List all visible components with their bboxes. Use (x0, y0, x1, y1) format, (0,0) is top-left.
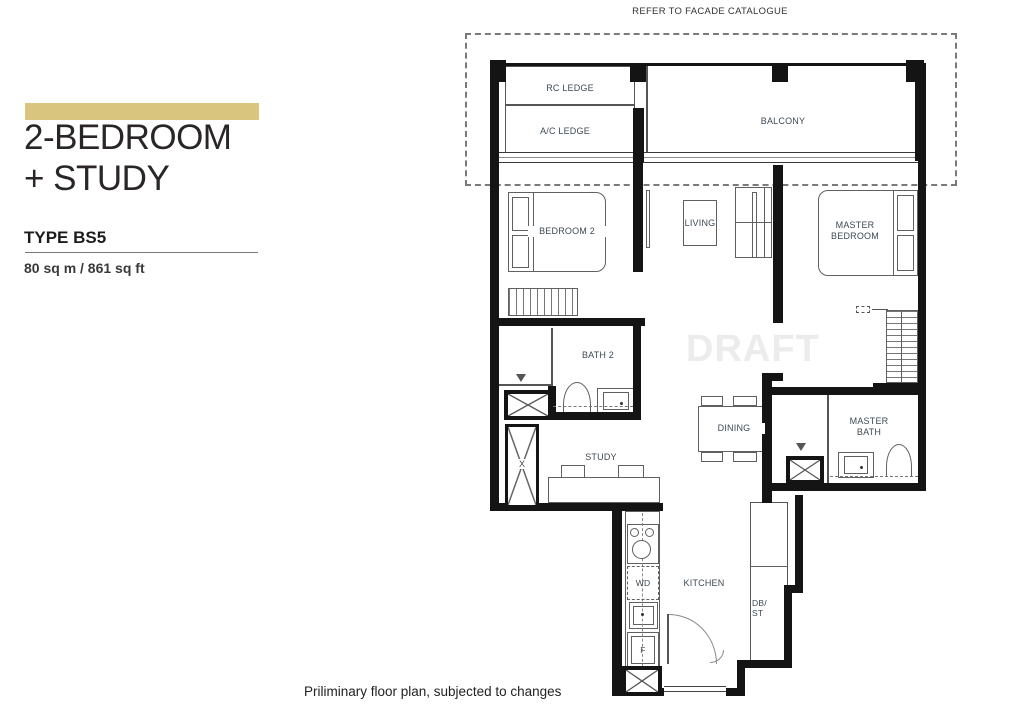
entrance-threshold (664, 686, 726, 692)
dining-chair (733, 452, 757, 462)
pillow (512, 235, 529, 268)
sink-basin (844, 456, 868, 474)
washer-dryer-label: WD (628, 578, 658, 589)
ac-ledge-xbox (504, 390, 552, 420)
dining-chair (701, 452, 723, 462)
sofa-backrest-line (764, 187, 765, 258)
wall-segment (498, 63, 918, 66)
db-st-closet (750, 502, 788, 664)
pillow (897, 235, 914, 271)
facade-note: REFER TO FACADE CATALOGUE (560, 6, 860, 17)
pillow (897, 195, 914, 231)
room-label-study: STUDY (569, 452, 633, 463)
sink-drain (620, 402, 623, 405)
room-label-master-bath: MASTER BATH (838, 416, 900, 438)
sliding-door-panel (752, 192, 757, 258)
room-label-rc-ledge: RC LEDGE (520, 83, 620, 94)
column-block (633, 108, 644, 162)
room-label-living: LIVING (681, 218, 719, 229)
wall-segment (784, 585, 792, 668)
fridge: F (627, 632, 659, 668)
draft-watermark: DRAFT (686, 328, 820, 371)
masterbath-screen-dashed (830, 476, 918, 477)
page-title-line2: + STUDY (24, 159, 169, 199)
shower-divider (551, 328, 553, 386)
panel-divider (25, 252, 258, 253)
masterbath-divider (827, 395, 829, 483)
study-chair (561, 465, 585, 478)
room-label-balcony: BALCONY (733, 116, 833, 127)
fridge-label: F (628, 645, 658, 656)
shower-head-icon (796, 443, 806, 451)
shower-divider (498, 384, 552, 386)
masterbath-shower-xbox (786, 456, 824, 484)
wall-segment (548, 412, 641, 420)
unit-area-label: 80 sq m / 861 sq ft (24, 260, 145, 276)
unit-type-label: TYPE BS5 (24, 228, 106, 248)
ledge-divider (505, 104, 635, 106)
entrance-door-arc-small (710, 650, 724, 663)
page-title-line1: 2-BEDROOM (24, 118, 231, 158)
sliding-door-panel (646, 190, 650, 248)
shower-screen-dashed (553, 406, 633, 407)
sink-drain (641, 613, 644, 616)
dining-chair (733, 396, 757, 406)
column-block (490, 60, 506, 82)
wall-segment (918, 158, 926, 491)
wardrobe-master (886, 310, 918, 383)
study-chair (618, 465, 644, 478)
door-slide-symbol (856, 306, 870, 313)
door-slide-line (872, 309, 888, 310)
wall-segment (873, 383, 926, 391)
wall-segment (773, 165, 783, 323)
window-band (498, 152, 918, 163)
disclaimer-text: Priliminary floor plan, subjected to cha… (304, 684, 561, 699)
dining-chair (701, 396, 723, 406)
db-st-label: DB/ ST (752, 598, 769, 620)
wall-segment (490, 63, 499, 511)
sofa-seat-divider (735, 222, 772, 223)
room-label-bedroom2: BEDROOM 2 (528, 226, 606, 237)
stove-burner (645, 528, 654, 537)
room-label-kitchen: KITCHEN (668, 578, 740, 589)
stove-burner-large (632, 540, 651, 559)
entrance-door-leaf (667, 614, 669, 664)
shower-head-icon (516, 374, 526, 382)
room-label-master-bedroom: MASTER BEDROOM (822, 220, 888, 242)
room-label-bath2: BATH 2 (568, 350, 628, 361)
wardrobe-divider (901, 310, 902, 383)
floor-plan-page: 2-BEDROOM + STUDY TYPE BS5 80 sq m / 861… (0, 0, 1024, 713)
stove-burner (630, 528, 639, 537)
riser-xbox: X (505, 424, 539, 508)
sink-drain (860, 466, 863, 469)
bed-line (893, 191, 894, 275)
toilet (886, 444, 912, 476)
wall-segment (498, 318, 645, 326)
wardrobe-bedroom2 (508, 288, 578, 316)
wall-segment (762, 373, 783, 381)
wall-segment (633, 160, 643, 272)
column-block (772, 63, 788, 82)
riser-x-label: X (508, 459, 536, 469)
washer-dryer: WD (627, 566, 659, 600)
kitchen-xbox (622, 666, 662, 696)
facade-dashed-boundary (465, 33, 957, 186)
closet-divider (750, 566, 788, 567)
sink-basin (603, 392, 629, 410)
balcony-left-edge (646, 66, 648, 154)
column-block (630, 63, 646, 82)
pillow (512, 197, 529, 231)
study-desk (548, 477, 660, 503)
column-block (906, 60, 924, 82)
room-label-dining: DINING (703, 423, 765, 434)
wall-segment (772, 483, 926, 491)
wall-segment (633, 318, 641, 420)
room-label-ac-ledge: A/C LEDGE (515, 126, 615, 137)
toilet (563, 382, 591, 414)
wall-segment (795, 495, 803, 593)
wall-segment (612, 503, 622, 693)
